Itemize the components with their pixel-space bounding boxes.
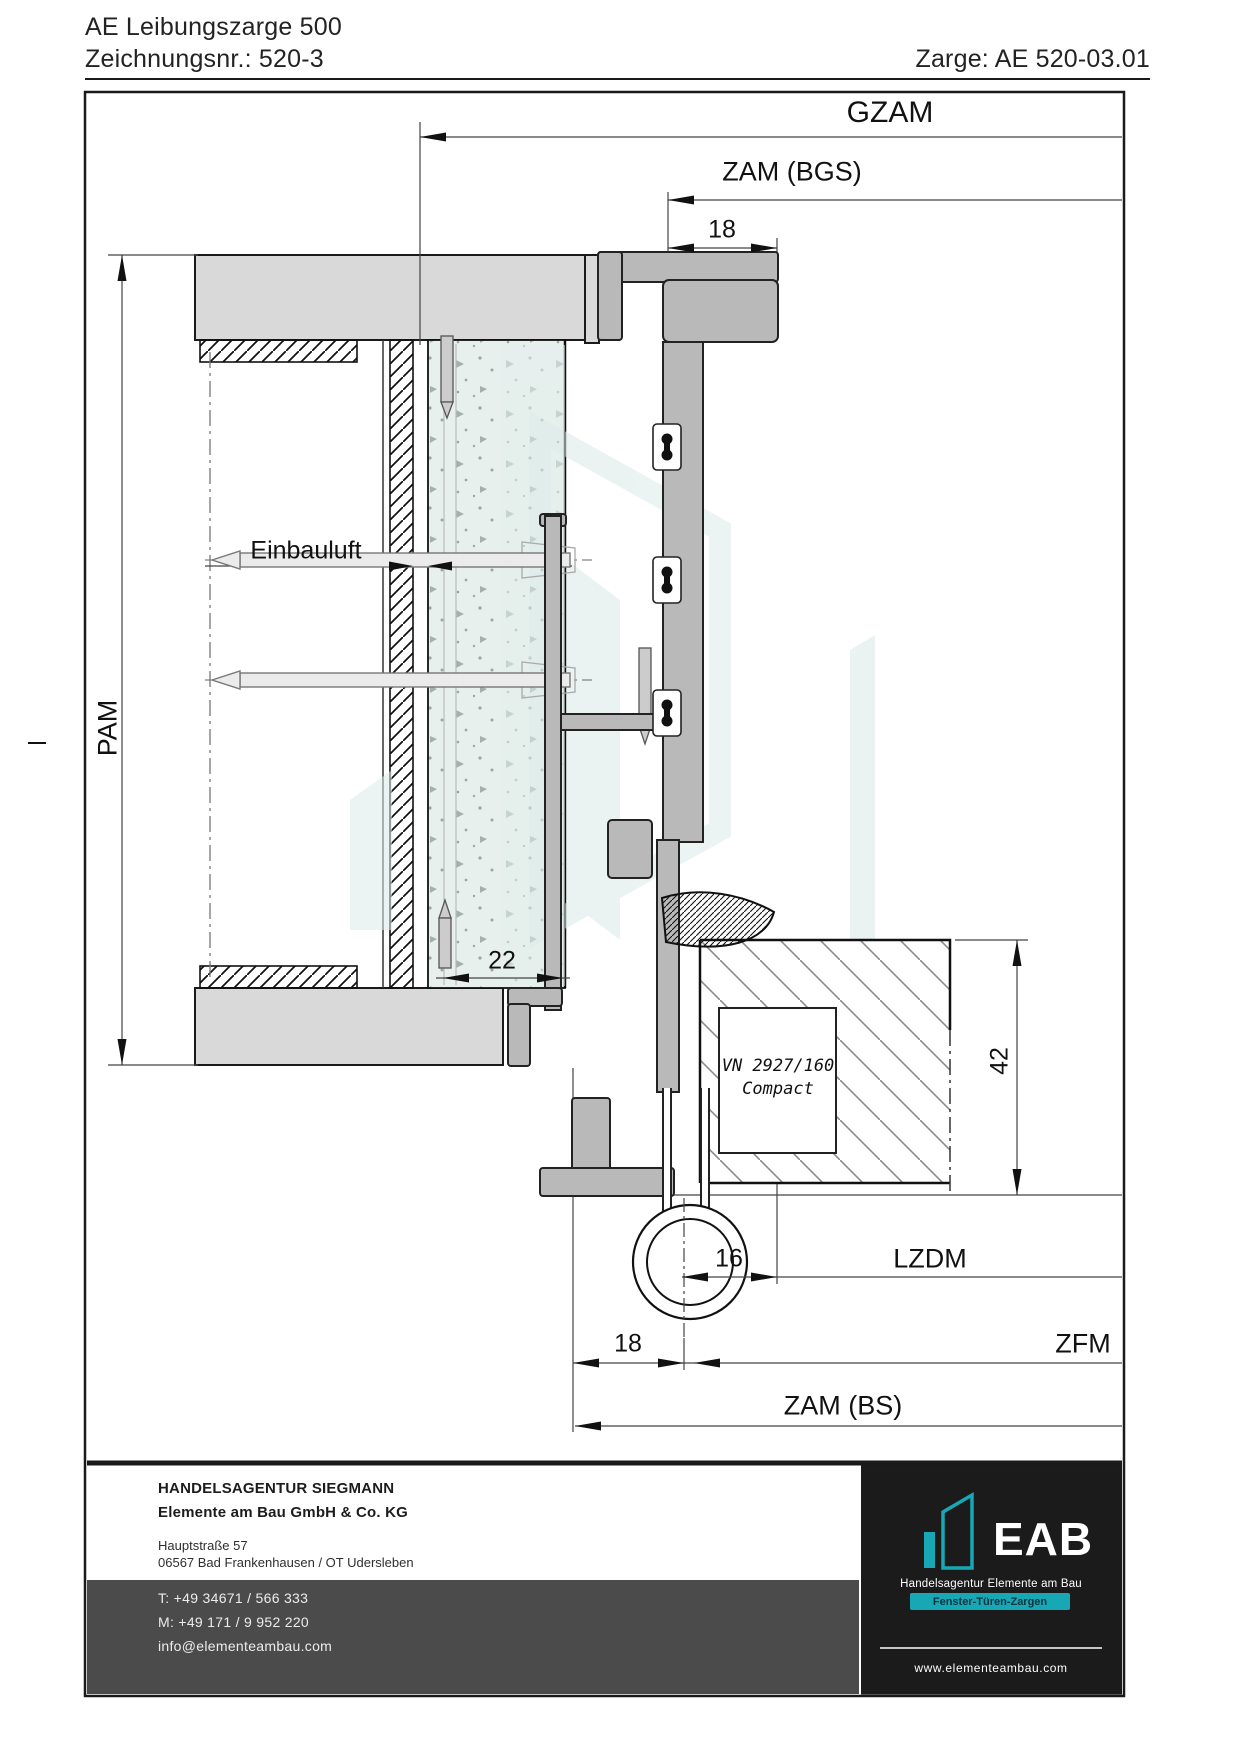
phone-landline: T: +49 34671 / 566 333 (158, 1590, 308, 1606)
dim-label-zfm: ZFM (1055, 1329, 1110, 1360)
drawing-sheet: AE Leibungszarge 500 Zeichnungsnr.: 520-… (0, 0, 1240, 1754)
logo-acronym: EAB (993, 1512, 1093, 1566)
email-address: info@elementeambau.com (158, 1638, 332, 1654)
dim-label-18-top: 18 (708, 216, 736, 245)
logo-website: www.elementeambau.com (914, 1661, 1067, 1675)
zarge-reference: Zarge: AE 520-03.01 (700, 45, 1150, 74)
lintel-block (195, 255, 585, 340)
dim-label-lzdm: LZDM (893, 1244, 967, 1275)
logo-subtitle: Handelsagentur Elemente am Bau (900, 1578, 1082, 1590)
company-legal-name: Elemente am Bau GmbH & Co. KG (158, 1504, 408, 1521)
dim-label-gzam: GZAM (847, 96, 934, 130)
dim-label-pam: PAM (93, 700, 124, 757)
masonry-hatch-top (200, 340, 357, 362)
address-street: Hauptstraße 57 (158, 1538, 248, 1553)
dim-label-18-bottom: 18 (614, 1330, 642, 1359)
masonry-hatch-bottom (200, 966, 357, 988)
dim-label-16: 16 (715, 1245, 743, 1274)
sill-block (195, 988, 503, 1065)
address-city: 06567 Bad Frankenhausen / OT Udersleben (158, 1555, 414, 1570)
dim-label-einbauluft: Einbauluft (250, 537, 361, 566)
phone-mobile: M: +49 171 / 9 952 220 (158, 1614, 309, 1630)
hinge-model-line1: VN 2927/160 (722, 1056, 835, 1076)
drawing-title: AE Leibungszarge 500 (85, 13, 342, 42)
lintel-end-block (585, 255, 599, 343)
dim-label-42: 42 (986, 1047, 1015, 1075)
profile-clip-chambers (653, 424, 681, 736)
dim-label-zam-bgs: ZAM (BGS) (722, 157, 862, 188)
drawing-number: Zeichnungsnr.: 520-3 (85, 45, 324, 74)
dim-label-22: 22 (488, 947, 516, 976)
seal-profile (662, 892, 774, 946)
dim-label-zam-bs: ZAM (BS) (784, 1391, 903, 1422)
logo-tagline: Fenster-Türen-Zargen (933, 1596, 1047, 1608)
masonry-hatch-reveal (390, 340, 413, 988)
company-name: HANDELSAGENTUR SIEGMANN (158, 1480, 394, 1497)
hinge-model-line2: Compact (742, 1079, 814, 1099)
